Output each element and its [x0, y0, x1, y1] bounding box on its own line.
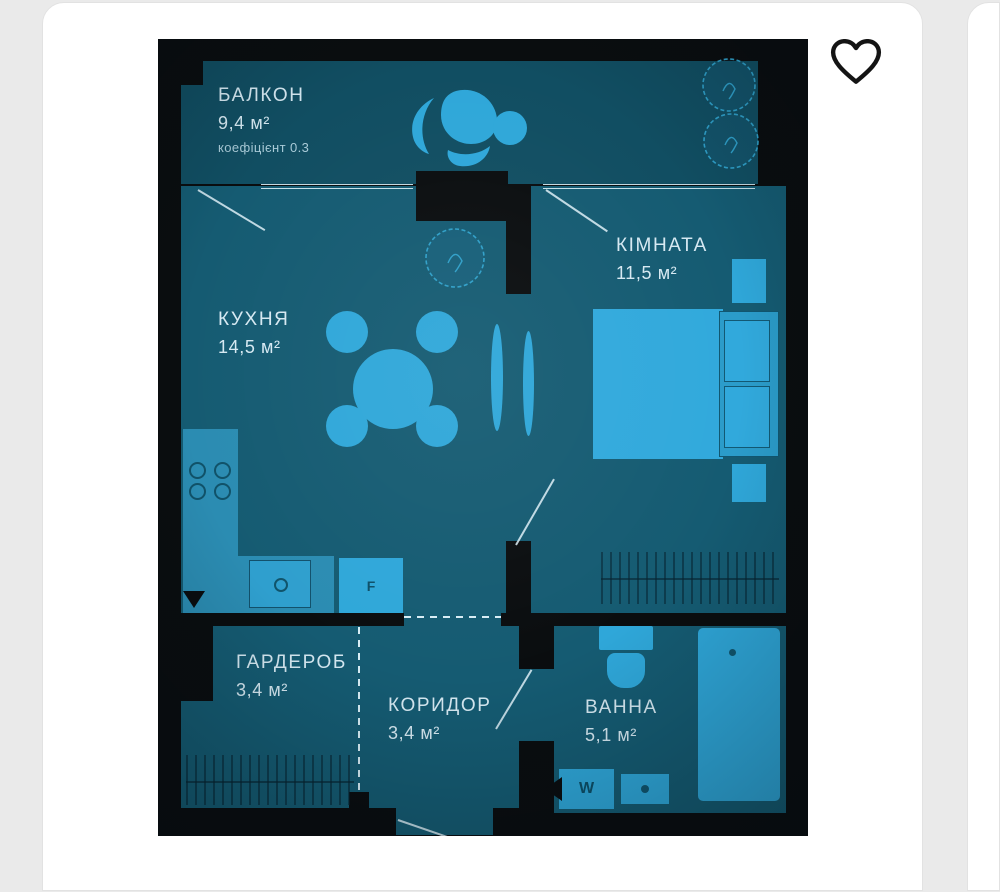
heart-outline-icon — [830, 39, 882, 87]
stove-burner — [214, 462, 231, 479]
room-label-kitchen: КУХНЯ 14,5 м² — [218, 309, 289, 358]
room-label-balcony: БАЛКОН 9,4 м² коефіцієнт 0.3 — [218, 85, 309, 155]
bed-blanket — [593, 309, 723, 459]
room-label-bathroom: ВАННА 5,1 м² — [585, 697, 658, 746]
chair — [326, 405, 368, 447]
floor-plan-image[interactable]: F W БАЛКОН — [158, 39, 808, 836]
washing-machine-label: W — [559, 769, 614, 809]
nightstand-bottom — [732, 464, 766, 502]
hanger-rail — [186, 781, 354, 783]
pillow — [724, 320, 770, 382]
nightstand-top — [732, 259, 766, 303]
room-label-bedroom: КІМНАТА 11,5 м² — [616, 235, 708, 284]
entry-marker-icon — [183, 591, 205, 608]
chair — [326, 311, 368, 353]
bathtub — [698, 628, 780, 801]
sliding-door-leaf-left — [491, 324, 503, 431]
room-label-wardrobe: ГАРДЕРОБ 3,4 м² — [236, 652, 347, 701]
entrance-arrow-icon — [545, 777, 562, 801]
closet-rail — [601, 578, 779, 580]
next-card-edge[interactable] — [967, 2, 1000, 891]
fridge-label: F — [339, 558, 403, 613]
fridge: F — [339, 558, 403, 613]
toilet-bowl — [607, 653, 645, 688]
stove-burner — [189, 483, 206, 500]
toilet-tank — [599, 626, 653, 650]
dashed-divider-wardrobe-corridor — [358, 627, 360, 795]
wall-notch — [181, 61, 203, 85]
chair — [416, 405, 458, 447]
tree-icons — [691, 57, 769, 177]
wall-segment — [416, 171, 508, 221]
stove-burner — [214, 483, 231, 500]
hanger-rack-hatch — [186, 755, 354, 805]
window-balcony-right — [543, 184, 755, 189]
opening-entrance — [396, 808, 493, 835]
flower-pot-icon — [398, 85, 530, 171]
pillow — [724, 386, 770, 448]
listing-card: F W БАЛКОН — [42, 2, 923, 891]
chair — [416, 311, 458, 353]
stove-burner — [189, 462, 206, 479]
bed-headboard — [719, 311, 779, 457]
favorite-button[interactable] — [830, 37, 886, 89]
room-label-corridor: КОРИДОР 3,4 м² — [388, 695, 491, 744]
sliding-door-leaf-right — [523, 331, 534, 436]
kitchen-sink — [249, 560, 311, 608]
plant-icon — [422, 225, 488, 291]
bathroom-sink — [621, 774, 669, 804]
window-balcony-left — [261, 184, 413, 189]
washing-machine: W — [559, 769, 614, 809]
dashed-opening-corridor — [404, 616, 501, 618]
bed — [593, 309, 781, 459]
